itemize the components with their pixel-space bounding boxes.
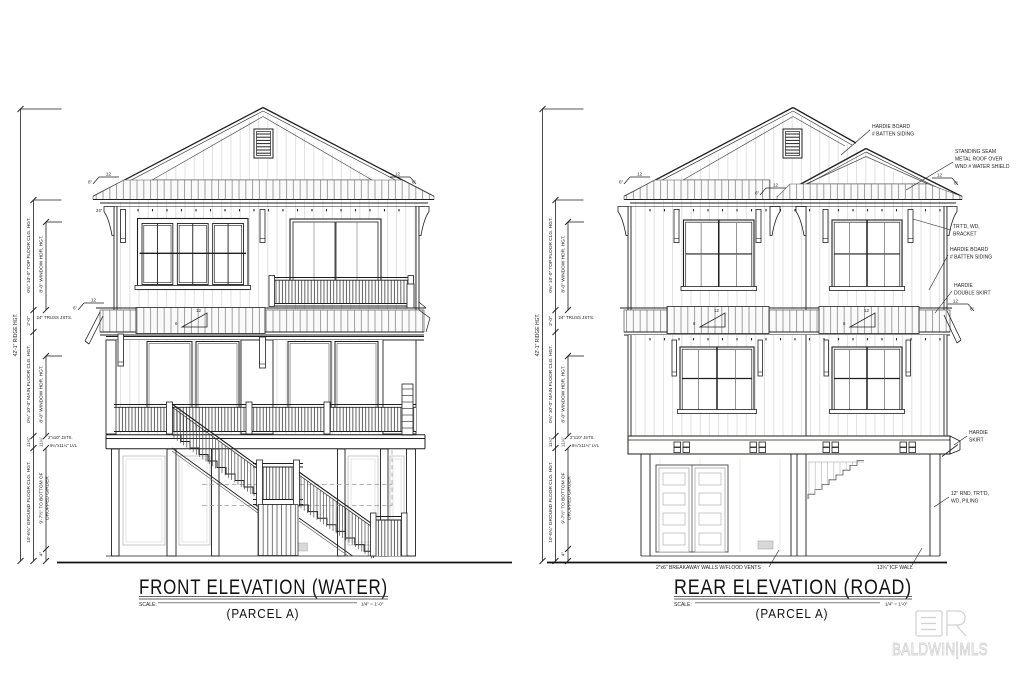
svg-text:8'-0" WINDOW HDR. HGT.: 8'-0" WINDOW HDR. HGT.: [561, 365, 567, 422]
svg-text:HARDIE BOARD: HARDIE BOARD: [950, 247, 988, 253]
svg-text:1/4" = 1'-0": 1/4" = 1'-0": [361, 602, 384, 607]
svg-text:SCALE:: SCALE:: [139, 602, 157, 608]
svg-text:12: 12: [937, 173, 943, 178]
svg-text:9¼"x11¼" LVL: 9¼"x11¼" LVL: [572, 443, 600, 448]
svg-text:6": 6": [88, 180, 93, 185]
svg-text:11¼": 11¼": [26, 437, 31, 448]
svg-text:6": 6": [954, 181, 959, 186]
svg-text:(PARCEL A): (PARCEL A): [756, 607, 829, 621]
svg-text:24" TRUSS JSTS.: 24" TRUSS JSTS.: [37, 315, 73, 320]
svg-text:# BATTEN SIDING: # BATTEN SIDING: [950, 255, 992, 261]
svg-text:8'-0" WINDOW HDR. HGT.: 8'-0" WINDOW HDR. HGT.: [561, 235, 567, 292]
svg-text:METAL ROOF OVER: METAL ROOF OVER: [955, 157, 1003, 163]
svg-text:24": 24": [96, 208, 103, 213]
svg-text:WND # WATER SHIELD: WND # WATER SHIELD: [955, 164, 1010, 170]
svg-text:10'-6¾" GROUND FLOOR CLG. HGT.: 10'-6¾" GROUND FLOOR CLG. HGT.: [26, 461, 32, 543]
svg-text:SKIRT: SKIRT: [969, 438, 984, 444]
svg-text:10'-6¾" GROUND FLOOR CLG. HGT.: 10'-6¾" GROUND FLOOR CLG. HGT.: [548, 461, 554, 543]
svg-text:HARDIE BOARD: HARDIE BOARD: [872, 124, 910, 130]
svg-text:0¾" 10'-0" TOP FLOOR CLG. HGT.: 0¾" 10'-0" TOP FLOOR CLG. HGT.: [548, 217, 554, 293]
svg-text:2"x10" JSTS.: 2"x10" JSTS.: [48, 435, 73, 440]
svg-text:6": 6": [73, 306, 78, 311]
svg-text:DROPPED GIRDER: DROPPED GIRDER: [567, 476, 573, 520]
svg-text:FRONT ELEVATION (WATER): FRONT ELEVATION (WATER): [139, 576, 388, 599]
svg-text:13¾" ICF WALL: 13¾" ICF WALL: [877, 565, 913, 571]
svg-text:4": 4": [39, 552, 45, 557]
svg-text:2'-0": 2'-0": [26, 316, 32, 326]
svg-text:BRACKET: BRACKET: [953, 232, 977, 238]
svg-text:0¾" 10'-0" MAIN FLOOR CLG. HGT: 0¾" 10'-0" MAIN FLOOR CLG. HGT.: [26, 345, 32, 423]
svg-text:12: 12: [196, 308, 201, 313]
svg-text:WD, PILING: WD, PILING: [951, 499, 979, 505]
svg-text:9'-7½" TO BOTTOM OF: 9'-7½" TO BOTTOM OF: [560, 472, 567, 523]
svg-text:BALDWIN|MLS: BALDWIN|MLS: [892, 639, 988, 659]
svg-text:HARDIE: HARDIE: [954, 283, 974, 289]
svg-text:REAR ELEVATION (ROAD): REAR ELEVATION (ROAD): [674, 576, 912, 599]
svg-text:6": 6": [619, 180, 624, 185]
svg-text:24" TRUSS JSTS.: 24" TRUSS JSTS.: [559, 315, 595, 320]
svg-text:6": 6": [412, 180, 417, 185]
svg-text:1/4" = 1'-0": 1/4" = 1'-0": [885, 602, 908, 607]
svg-text:42'-1" RIDGE HGT.: 42'-1" RIDGE HGT.: [535, 314, 541, 357]
svg-text:12: 12: [106, 172, 112, 177]
svg-text:(PARCEL A): (PARCEL A): [227, 607, 300, 621]
svg-text:DROPPED GIRDER: DROPPED GIRDER: [45, 476, 51, 520]
svg-text:6": 6": [755, 191, 760, 196]
svg-text:HARDIE: HARDIE: [969, 430, 989, 436]
svg-text:11¼": 11¼": [561, 437, 566, 448]
svg-text:STANDING SEAM: STANDING SEAM: [955, 149, 996, 155]
svg-text:12: 12: [953, 299, 959, 304]
svg-text:12: 12: [773, 183, 779, 188]
svg-text:4": 4": [561, 552, 567, 557]
svg-text:0¾" 10'-0" TOP FLOOR CLG. HGT.: 0¾" 10'-0" TOP FLOOR CLG. HGT.: [26, 217, 32, 293]
svg-text:DOUBLE SKIRT: DOUBLE SKIRT: [954, 291, 991, 297]
svg-text:SCALE:: SCALE:: [674, 602, 692, 608]
svg-text:12: 12: [714, 308, 719, 313]
svg-text:9¼"x11¼" LVL: 9¼"x11¼" LVL: [50, 443, 78, 448]
svg-text:42'-1" RIDGE HGT.: 42'-1" RIDGE HGT.: [13, 314, 19, 357]
svg-text:# BATTEN SIDING: # BATTEN SIDING: [872, 132, 914, 138]
svg-text:11¼": 11¼": [39, 437, 44, 448]
svg-text:2"x10" JSTS.: 2"x10" JSTS.: [570, 435, 595, 440]
svg-text:12: 12: [91, 298, 97, 303]
svg-text:12" RND, TRT'D,: 12" RND, TRT'D,: [951, 491, 989, 497]
svg-text:2"x6" BREAKAWAY WALLS W/FLOOD: 2"x6" BREAKAWAY WALLS W/FLOOD VENTS: [656, 565, 761, 571]
svg-text:6": 6": [970, 307, 975, 312]
svg-text:8'-0" WINDOW HDR. HGT.: 8'-0" WINDOW HDR. HGT.: [39, 235, 45, 292]
svg-text:2'-0": 2'-0": [548, 316, 554, 326]
svg-text:11¼": 11¼": [548, 437, 553, 448]
svg-text:0¾" 10'-0" MAIN FLOOR CLG. HGT: 0¾" 10'-0" MAIN FLOOR CLG. HGT.: [548, 345, 554, 423]
svg-text:TRT'D, WD,: TRT'D, WD,: [953, 224, 980, 230]
svg-text:12: 12: [864, 308, 869, 313]
svg-text:8'-0" WINDOW HDR. HGT.: 8'-0" WINDOW HDR. HGT.: [39, 365, 45, 422]
svg-text:12: 12: [395, 172, 401, 177]
svg-text:9'-7½" TO BOTTOM OF: 9'-7½" TO BOTTOM OF: [38, 472, 45, 523]
svg-text:12: 12: [637, 172, 643, 177]
